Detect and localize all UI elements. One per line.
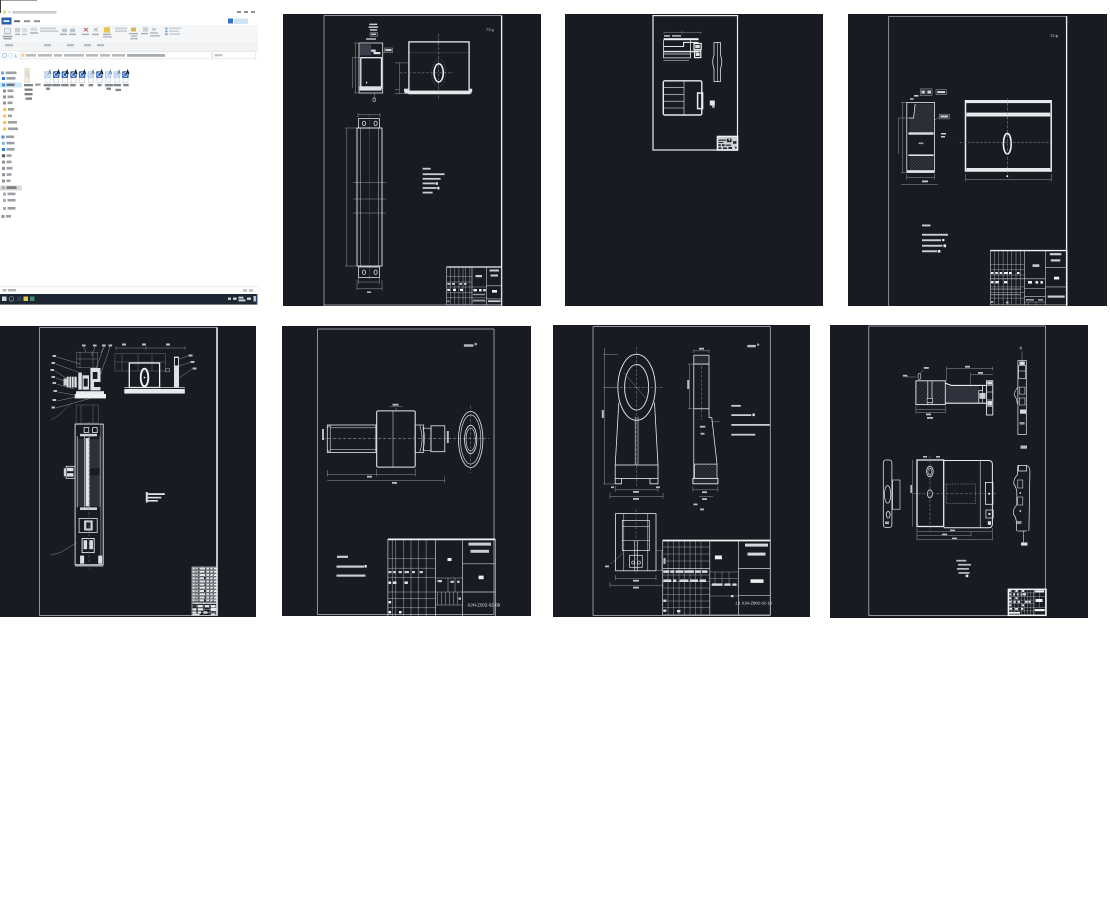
svg-text:13 φ: 13 φ (1050, 33, 1059, 38)
svg-text:XJH-Z502-02-08: XJH-Z502-02-08 (468, 603, 501, 608)
svg-text:73 g: 73 g (486, 27, 494, 32)
svg-text:1:1 XJH-ZB02-02-10: 1:1 XJH-ZB02-02-10 (735, 600, 772, 605)
svg-text:B: B (1020, 346, 1023, 351)
